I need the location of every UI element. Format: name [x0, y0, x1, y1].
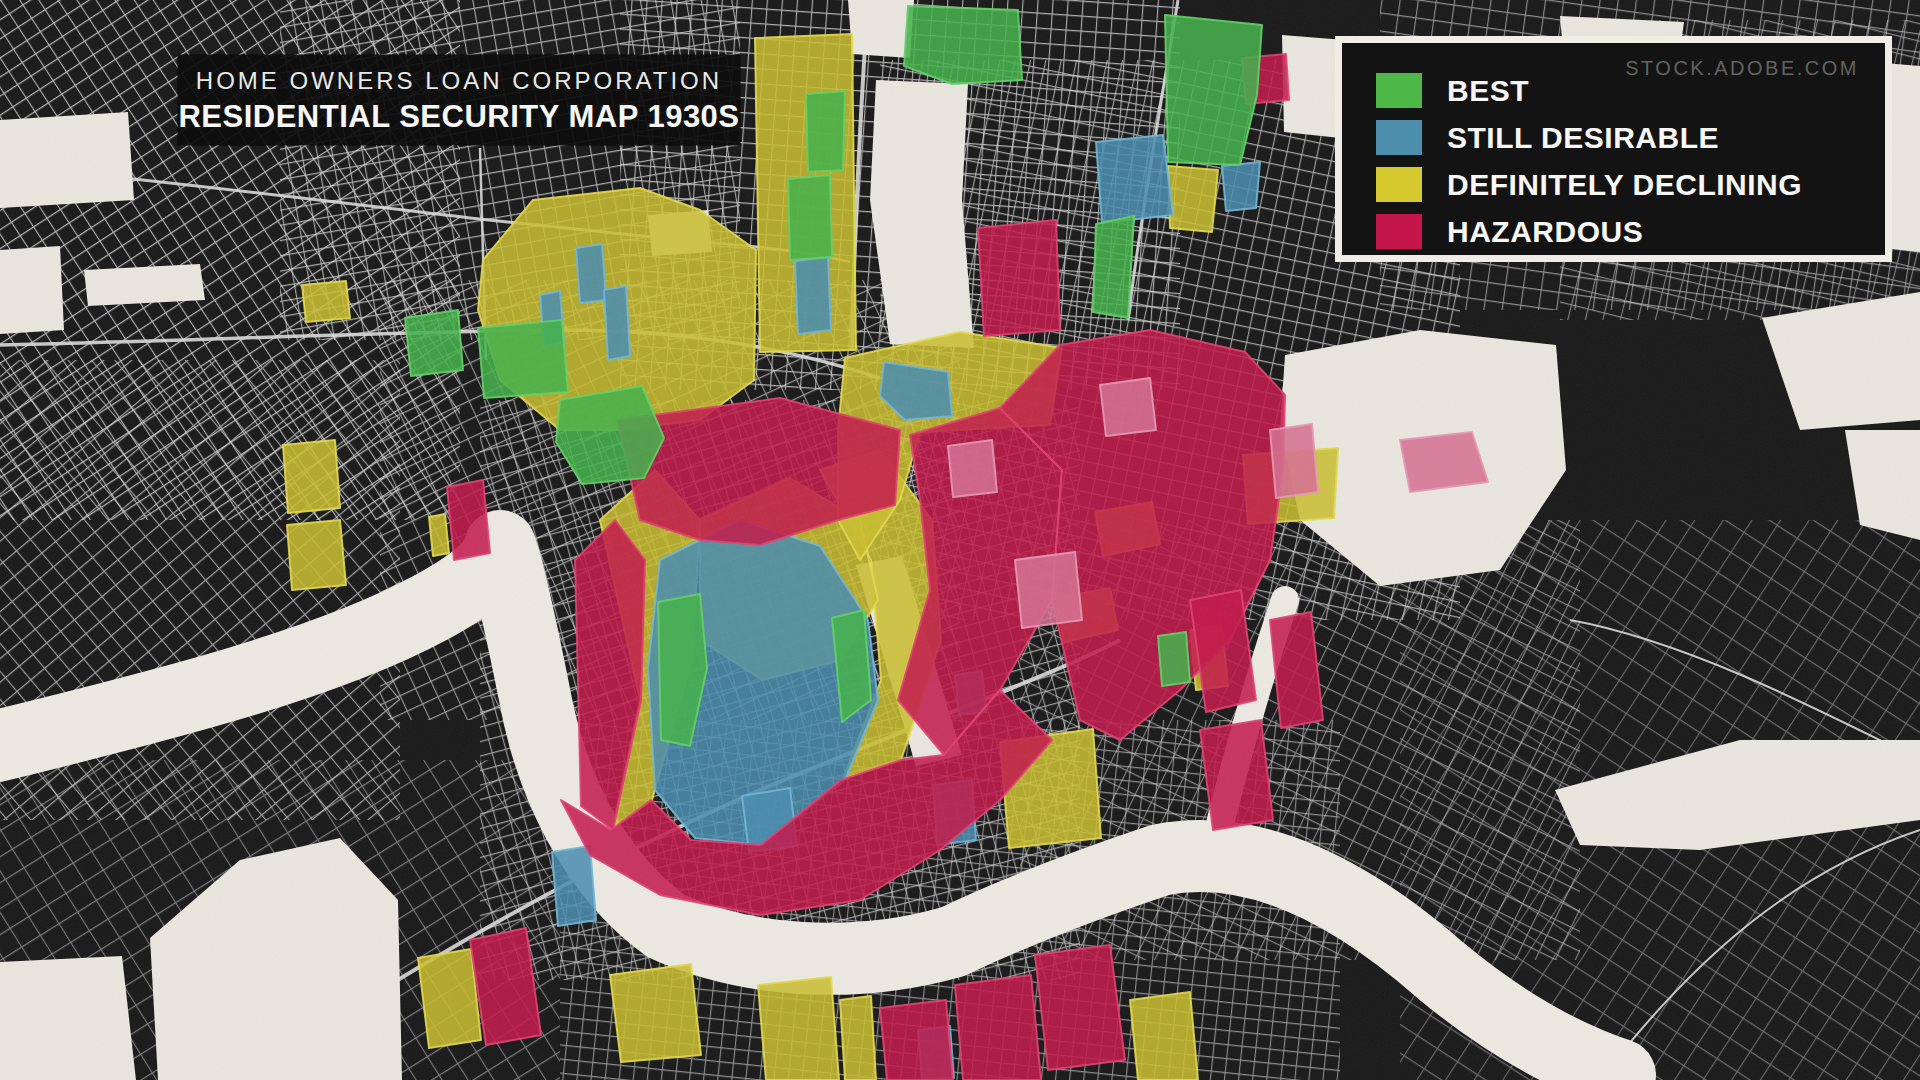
legend-item-label: STILL DESIRABLE [1447, 121, 1719, 155]
legend-item-label: DEFINITELY DECLINING [1447, 168, 1802, 202]
holc-map-screenshot: HOME OWNERS LOAN CORPORATION RESIDENTIAL… [0, 0, 1920, 1080]
legend-item-still-desirable: STILL DESIRABLE [1376, 114, 1802, 161]
legend-swatch-icon [1376, 120, 1422, 155]
legend-rows: BESTSTILL DESIRABLEDEFINITELY DECLININGH… [1376, 67, 1802, 255]
legend-item-best: BEST [1376, 67, 1802, 114]
title-box: HOME OWNERS LOAN CORPORATION RESIDENTIAL… [178, 55, 740, 145]
legend-item-hazardous: HAZARDOUS [1376, 208, 1802, 255]
legend-swatch-icon [1376, 73, 1422, 108]
legend-item-label: HAZARDOUS [1447, 215, 1643, 249]
legend-box: STOCK.ADOBE.COM BESTSTILL DESIRABLEDEFIN… [1335, 36, 1892, 262]
legend-swatch-icon [1376, 167, 1422, 202]
legend-item-label: BEST [1447, 74, 1529, 108]
title-line-1: HOME OWNERS LOAN CORPORATION [178, 67, 740, 95]
legend-item-definitely-declining: DEFINITELY DECLINING [1376, 161, 1802, 208]
title-line-2: RESIDENTIAL SECURITY MAP 1930S [178, 99, 740, 135]
legend-swatch-icon [1376, 214, 1422, 249]
